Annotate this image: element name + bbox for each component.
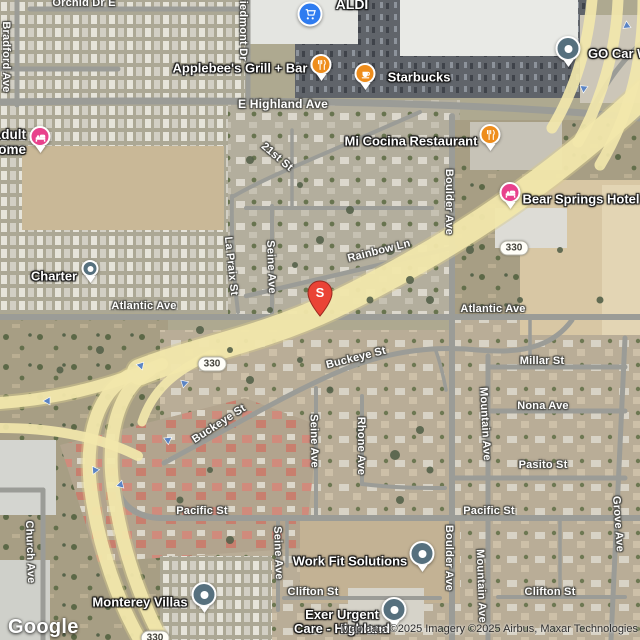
street-orchid-dr-e: Orchid Dr E	[52, 0, 115, 9]
place-icon	[192, 582, 217, 607]
adult-home-line1: Adult	[0, 127, 26, 142]
street-seine-ave-mid: Seine Ave	[308, 414, 321, 468]
applebees-pin[interactable]	[311, 54, 332, 86]
route-shield-330-upper: 330	[500, 241, 529, 256]
exer-line1: Exer Urgent	[294, 608, 390, 622]
adult-home-pin[interactable]	[30, 126, 51, 158]
street-boulder-ave-lower: Boulder Ave	[443, 525, 455, 591]
place-icon	[410, 541, 435, 566]
charter-pin[interactable]	[82, 260, 99, 288]
street-atlantic-ave-right: Atlantic Ave	[460, 303, 525, 315]
satellite-imagery	[0, 0, 640, 640]
mi-cocina-pin[interactable]	[480, 124, 501, 156]
street-e-highland-ave: E Highland Ave	[238, 97, 328, 111]
coffee-icon	[355, 63, 376, 84]
street-pacific-st-right: Pacific St	[463, 505, 515, 517]
map-attribution: Map data ©2025 Imagery ©2025 Airbus, Max…	[341, 623, 638, 635]
street-millar-st: Millar St	[520, 355, 565, 367]
bear-springs-hotel-label[interactable]: Bear Springs Hotel	[522, 192, 639, 207]
work-fit-solutions-pin[interactable]	[410, 541, 435, 577]
starbucks-label[interactable]: Starbucks	[388, 70, 451, 85]
applebees-label[interactable]: Applebee's Grill + Bar	[173, 61, 308, 76]
bed-icon	[30, 126, 51, 147]
charter-label[interactable]: Charter	[31, 269, 77, 284]
street-church-ave: Church Ave	[23, 520, 37, 583]
street-piedmont-dr: Piedmont Dr	[237, 0, 249, 61]
street-clifton-st-left: Clifton St	[288, 586, 339, 598]
street-mountain-ave-lower: Mountain Ave	[474, 549, 489, 623]
map-canvas[interactable]: Orchid Dr E Bradford Ave Piedmont Dr E H…	[0, 0, 640, 640]
go-car-wash-pin[interactable]	[556, 36, 581, 72]
search-result-marker[interactable]: S	[307, 280, 334, 317]
work-fit-solutions-label[interactable]: Work Fit Solutions	[293, 554, 408, 569]
place-icon	[82, 260, 99, 277]
street-rhone-ave: Rhone Ave	[355, 417, 367, 475]
monterey-villas-label[interactable]: Monterey Villas	[92, 595, 187, 610]
bed-icon	[500, 182, 521, 203]
street-pasito-st: Pasito St	[519, 459, 568, 471]
street-clifton-st-right: Clifton St	[525, 586, 576, 598]
street-atlantic-ave-left: Atlantic Ave	[111, 300, 176, 312]
restaurant-icon	[480, 124, 501, 145]
adult-home-label[interactable]: Adult Home	[0, 127, 26, 157]
monterey-villas-pin[interactable]	[192, 582, 217, 618]
street-seine-ave-lower: Seine Ave	[271, 526, 285, 580]
bear-springs-hotel-pin[interactable]	[500, 182, 521, 214]
street-nona-ave: Nona Ave	[517, 400, 569, 412]
marker-label: S	[307, 285, 334, 300]
route-shield-330-mid: 330	[198, 357, 227, 372]
street-boulder-ave-upper: Boulder Ave	[443, 169, 455, 235]
street-pacific-st-left: Pacific St	[176, 505, 228, 517]
go-car-wash-label[interactable]: GO Car Wash	[588, 46, 640, 61]
aldi-label[interactable]: ALDI	[336, 0, 369, 12]
google-logo[interactable]: Google	[8, 616, 79, 639]
place-icon	[556, 36, 581, 61]
street-seine-ave-upper: Seine Ave	[264, 240, 278, 294]
street-bradford-ave: Bradford Ave	[0, 21, 12, 92]
adult-home-line2: Home	[0, 142, 26, 157]
shopping-cart-icon	[298, 2, 323, 27]
restaurant-icon	[311, 54, 332, 75]
starbucks-pin[interactable]	[355, 63, 376, 95]
route-shield-330-bottom: 330	[141, 631, 170, 640]
aldi-pin[interactable]	[298, 2, 323, 27]
mi-cocina-label[interactable]: Mi Cocina Restaurant	[345, 134, 478, 149]
